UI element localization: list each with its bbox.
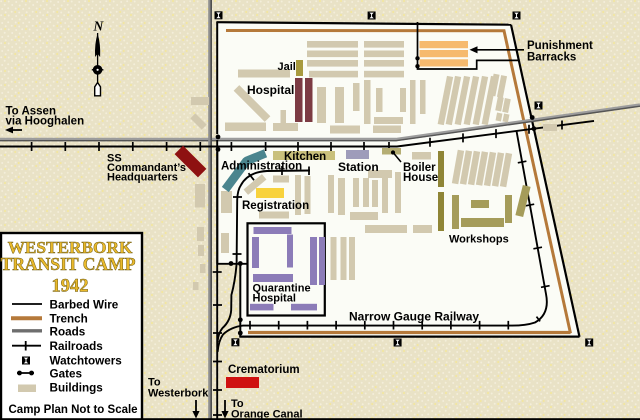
svg-text:via Hooghalen: via Hooghalen — [6, 116, 85, 128]
svg-text:Hospital: Hospital — [253, 292, 296, 304]
svg-text:Roads: Roads — [50, 326, 86, 339]
svg-text:Crematorium: Crematorium — [228, 364, 300, 376]
svg-text:Jail: Jail — [278, 61, 296, 73]
svg-text:Railroads: Railroads — [50, 340, 104, 353]
svg-text:Barracks: Barracks — [527, 52, 576, 64]
svg-text:Narrow Gauge Railway: Narrow Gauge Railway — [349, 310, 479, 324]
svg-text:Hospital: Hospital — [247, 83, 294, 97]
svg-text:Trench: Trench — [50, 313, 88, 326]
svg-text:Headquarters: Headquarters — [107, 172, 178, 184]
svg-text:Punishment: Punishment — [527, 40, 593, 52]
svg-text:N: N — [93, 19, 105, 34]
svg-text:Kitchen: Kitchen — [284, 151, 326, 163]
svg-text:Registration: Registration — [242, 200, 309, 212]
svg-text:Westerbork: Westerbork — [148, 388, 209, 400]
svg-text:Gates: Gates — [50, 368, 83, 381]
svg-text:TRANSIT CAMP: TRANSIT CAMP — [0, 254, 135, 274]
svg-text:1942: 1942 — [52, 277, 89, 297]
svg-text:Barbed Wire: Barbed Wire — [50, 299, 119, 312]
svg-text:Workshops: Workshops — [449, 234, 509, 246]
svg-text:Buildings: Buildings — [50, 382, 104, 395]
svg-text:House: House — [403, 172, 438, 184]
svg-text:Watchtowers: Watchtowers — [50, 355, 123, 368]
svg-text:Station: Station — [338, 160, 379, 174]
svg-text:Camp Plan Not to Scale: Camp Plan Not to Scale — [9, 404, 138, 416]
